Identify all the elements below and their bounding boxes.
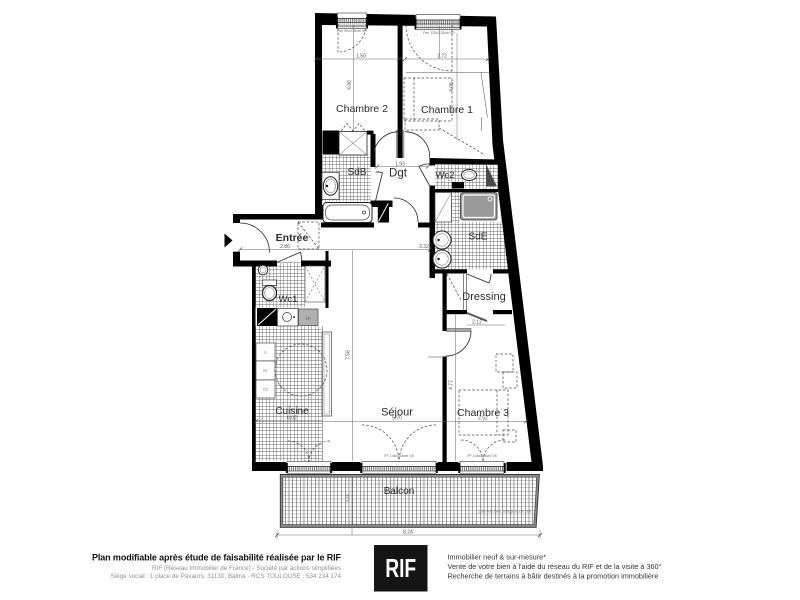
svg-text:8.24: 8.24: [403, 530, 413, 536]
svg-text:Wc2: Wc2: [436, 170, 455, 181]
svg-text:1.93: 1.93: [395, 161, 405, 167]
svg-text:Plan modifiable après étude de: Plan modifiable après étude de faisabili…: [92, 553, 342, 563]
svg-text:SdE: SdE: [469, 232, 488, 243]
svg-text:Wc1: Wc1: [279, 294, 298, 305]
svg-text:5.70: 5.70: [392, 416, 402, 422]
svg-text:7.58: 7.58: [346, 350, 352, 360]
svg-text:RIF: RIF: [385, 553, 416, 583]
svg-text:1.50: 1.50: [356, 54, 366, 60]
svg-text:Vente de votre bien à l'aide d: Vente de votre bien à l'aide du réseau d…: [448, 562, 662, 571]
svg-text:Balcon: Balcon: [384, 486, 415, 497]
svg-text:SdB: SdB: [348, 167, 367, 178]
svg-text:Fen 90x215cm VR: Fen 90x215cm VR: [337, 29, 367, 33]
svg-text:Fen 120x215cm VR: Fen 120x215cm VR: [423, 31, 455, 35]
svg-text:LV: LV: [306, 316, 311, 321]
svg-text:FF 146x215cm V8: FF 146x215cm V8: [384, 454, 413, 458]
svg-text:FF 146x215cm V8: FF 146x215cm V8: [467, 454, 496, 458]
svg-text:2.86: 2.86: [280, 244, 290, 250]
svg-text:Dressing: Dressing: [462, 291, 505, 303]
svg-text:4.05: 4.05: [449, 82, 455, 92]
svg-text:Recherche de terrains à bâtir: Recherche de terrains à bâtir destinés à…: [448, 572, 659, 581]
svg-text:2.72: 2.72: [437, 54, 447, 60]
svg-text:Chambre 2: Chambre 2: [336, 103, 388, 115]
svg-text:Chambre 1: Chambre 1: [421, 104, 473, 116]
svg-text:Siège social : 1 place de Pava: Siège social : 1 place de Pavaurs, 31130…: [111, 573, 342, 580]
svg-text:LL: LL: [264, 351, 268, 355]
svg-text:RIF (Réseau Immobilier de Fran: RIF (Réseau Immobilier de France) - Soci…: [152, 565, 341, 572]
svg-text:Immobilier neuf & sur-mesure*: Immobilier neuf & sur-mesure*: [448, 553, 547, 562]
svg-text:RF: RF: [263, 369, 268, 373]
svg-text:6.02: 6.02: [287, 416, 297, 422]
svg-text:3.32: 3.32: [419, 244, 429, 250]
svg-text:2.52: 2.52: [478, 416, 488, 422]
svg-text:pare vue avec lentage 01cm cla: pare vue avec lentage 01cm clair: [479, 510, 533, 514]
svg-text:2.29: 2.29: [345, 493, 350, 502]
svg-text:4.06: 4.06: [347, 80, 353, 90]
svg-text:Entrée: Entrée: [276, 232, 309, 244]
svg-text:Dgt: Dgt: [389, 168, 408, 180]
svg-text:CU: CU: [263, 388, 268, 392]
svg-text:2.12: 2.12: [472, 320, 482, 326]
svg-text:4.77: 4.77: [449, 380, 455, 390]
